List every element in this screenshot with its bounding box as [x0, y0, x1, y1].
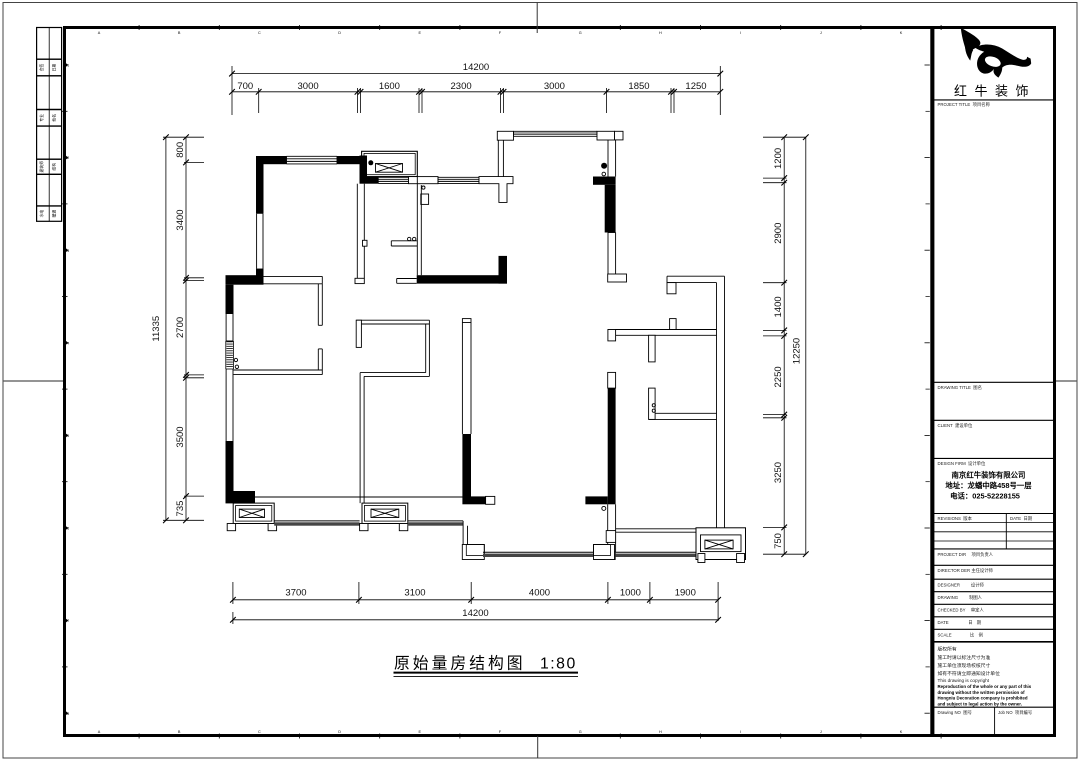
svg-text:水电: 水电 — [39, 210, 44, 218]
svg-text:如有不符请立即通知设计单位: 如有不符请立即通知设计单位 — [938, 670, 1001, 677]
svg-text:D: D — [338, 31, 341, 35]
svg-text:暖通: 暖通 — [52, 210, 57, 218]
svg-text:I: I — [740, 730, 741, 734]
svg-text:DIRECTOR DER 主任设计师: DIRECTOR DER 主任设计师 — [938, 567, 994, 574]
svg-text:1900: 1900 — [675, 588, 696, 599]
svg-text:Hongniu Decoration company is: Hongniu Decoration company is prohibited — [938, 696, 1028, 701]
svg-text:3400: 3400 — [175, 209, 186, 230]
svg-text:4000: 4000 — [529, 588, 550, 599]
svg-text:D: D — [338, 730, 341, 734]
svg-text:B: B — [178, 31, 181, 35]
svg-text:800: 800 — [175, 142, 186, 158]
svg-text:A: A — [98, 31, 101, 35]
svg-text:750: 750 — [773, 533, 784, 549]
svg-text:Job NO 项目编号: Job NO 项目编号 — [998, 709, 1032, 716]
svg-text:and subject to legal action by: and subject to legal action by the owner… — [938, 701, 1022, 706]
svg-text:DESIGN FIRM 设计单位: DESIGN FIRM 设计单位 — [938, 460, 986, 467]
svg-text:专业: 专业 — [39, 114, 44, 122]
svg-text:A: A — [98, 730, 101, 734]
svg-text:日期: 日期 — [52, 64, 57, 72]
svg-text:CHECKED BY 审定人: CHECKED BY 审定人 — [938, 606, 985, 613]
svg-text:版权所有: 版权所有 — [938, 646, 957, 653]
svg-text:735: 735 — [175, 501, 186, 517]
svg-text:3000: 3000 — [298, 81, 319, 92]
svg-text:1200: 1200 — [773, 148, 784, 169]
svg-text:E: E — [419, 730, 422, 734]
svg-text:K: K — [900, 730, 903, 734]
svg-text:2900: 2900 — [773, 223, 784, 244]
svg-text:建筑师: 建筑师 — [39, 161, 44, 173]
svg-text:红牛装饰: 红牛装饰 — [954, 84, 1036, 99]
svg-text:SCALE 比 例: SCALE 比 例 — [938, 631, 983, 638]
svg-text:1250: 1250 — [685, 81, 706, 92]
svg-text:原始量房结构图: 原始量房结构图 — [394, 655, 526, 673]
svg-text:700: 700 — [237, 81, 253, 92]
svg-text:2250: 2250 — [773, 366, 784, 387]
svg-text:2700: 2700 — [175, 317, 186, 338]
svg-text:3700: 3700 — [285, 588, 306, 599]
svg-text:H: H — [659, 730, 662, 734]
svg-text:DRAWING TITLE 图名: DRAWING TITLE 图名 — [938, 384, 982, 391]
svg-text:1000: 1000 — [620, 588, 641, 599]
svg-text:施工单位须现场校核尺寸: 施工单位须现场校核尺寸 — [938, 662, 991, 669]
svg-text:14200: 14200 — [463, 62, 489, 73]
svg-text:G: G — [579, 31, 582, 35]
svg-text:K: K — [900, 31, 903, 35]
svg-text:DESIGNER 设计师: DESIGNER 设计师 — [938, 581, 985, 588]
svg-text:C: C — [258, 730, 261, 734]
svg-text:Reproduction of the whole or a: Reproduction of the whole or any part of… — [938, 684, 1032, 689]
svg-text:H: H — [659, 31, 662, 35]
svg-text:C: C — [258, 31, 261, 35]
svg-text:南京红牛装饰有限公司: 南京红牛装饰有限公司 — [952, 471, 1026, 480]
svg-text:11335: 11335 — [151, 316, 162, 342]
svg-text:REVISIONS 版本: REVISIONS 版本 — [938, 515, 973, 522]
svg-text:J: J — [820, 31, 822, 35]
svg-text:This drawing is copyright: This drawing is copyright — [938, 678, 990, 683]
svg-text:1850: 1850 — [628, 81, 649, 92]
svg-text:电话：025-52228155: 电话：025-52228155 — [950, 492, 1020, 501]
svg-text:1400: 1400 — [773, 296, 784, 317]
svg-text:3250: 3250 — [773, 462, 784, 483]
svg-text:J: J — [820, 730, 822, 734]
svg-text:3000: 3000 — [544, 81, 565, 92]
svg-text:14200: 14200 — [462, 608, 488, 619]
svg-text:1:80: 1:80 — [540, 656, 577, 673]
svg-text:1600: 1600 — [379, 81, 400, 92]
svg-text:G: G — [579, 730, 582, 734]
svg-text:I: I — [740, 31, 741, 35]
svg-text:DRAWING 制图人: DRAWING 制图人 — [938, 594, 983, 601]
svg-text:结构: 结构 — [52, 163, 57, 171]
svg-text:会签: 会签 — [39, 64, 44, 72]
svg-text:地址：龙蟠中路458号一层: 地址：龙蟠中路458号一层 — [945, 481, 1032, 490]
svg-text:施工时请以标注尺寸为准: 施工时请以标注尺寸为准 — [938, 654, 991, 661]
svg-text:drawing without the written pe: drawing without the written permission o… — [938, 690, 1026, 695]
svg-text:姓名: 姓名 — [52, 114, 57, 122]
svg-text:3500: 3500 — [175, 426, 186, 447]
svg-text:PROJECT DIR 项目负责人: PROJECT DIR 项目负责人 — [938, 551, 994, 558]
svg-text:CLIENT 建设单位: CLIENT 建设单位 — [938, 422, 973, 429]
svg-text:12250: 12250 — [792, 338, 803, 364]
svg-text:2300: 2300 — [451, 81, 472, 92]
svg-text:3100: 3100 — [404, 588, 425, 599]
svg-text:E: E — [419, 31, 422, 35]
svg-text:PROJECT TITLE 项目名称: PROJECT TITLE 项目名称 — [938, 101, 991, 108]
svg-text:B: B — [178, 730, 181, 734]
